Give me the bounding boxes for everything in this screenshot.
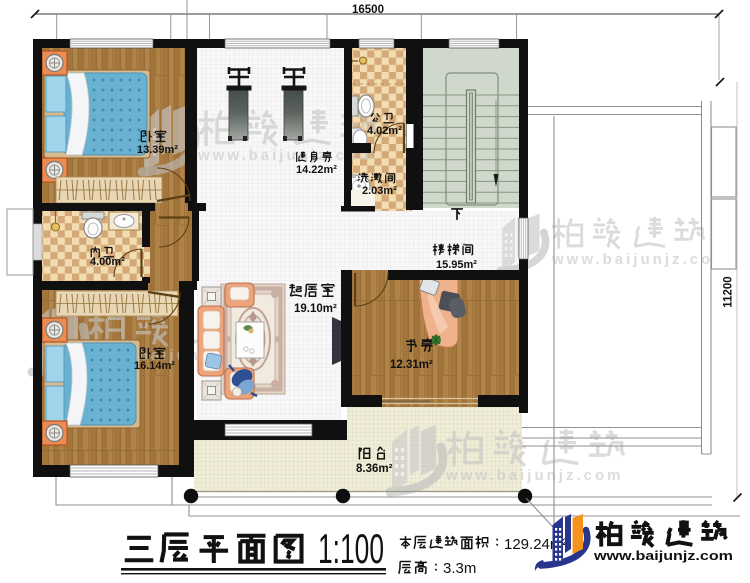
svg-text:14.22m²: 14.22m² <box>296 164 337 176</box>
svg-text:12.31m²: 12.31m² <box>390 359 433 371</box>
svg-text:4.00m²: 4.00m² <box>90 256 125 268</box>
svg-text:www.baijunjz.com: www.baijunjz.com <box>551 251 729 268</box>
svg-text:1:100: 1:100 <box>318 525 384 572</box>
svg-text:16500: 16500 <box>352 4 384 16</box>
svg-text:16.14m²: 16.14m² <box>134 360 175 372</box>
svg-text:4.02m²: 4.02m² <box>367 125 402 137</box>
svg-text:11200: 11200 <box>723 276 735 307</box>
svg-text:19.10m²: 19.10m² <box>294 303 337 315</box>
svg-text:2.03m²: 2.03m² <box>362 185 397 197</box>
svg-text:8.36m²: 8.36m² <box>356 463 393 475</box>
svg-text:www.baijunjz.com: www.baijunjz.com <box>593 548 733 563</box>
svg-text:www.baijunjz.com: www.baijunjz.com <box>445 467 623 484</box>
svg-text:3.3m: 3.3m <box>443 560 476 577</box>
svg-text:15.95m²: 15.95m² <box>436 259 477 271</box>
svg-text:13.39m²: 13.39m² <box>137 144 178 156</box>
